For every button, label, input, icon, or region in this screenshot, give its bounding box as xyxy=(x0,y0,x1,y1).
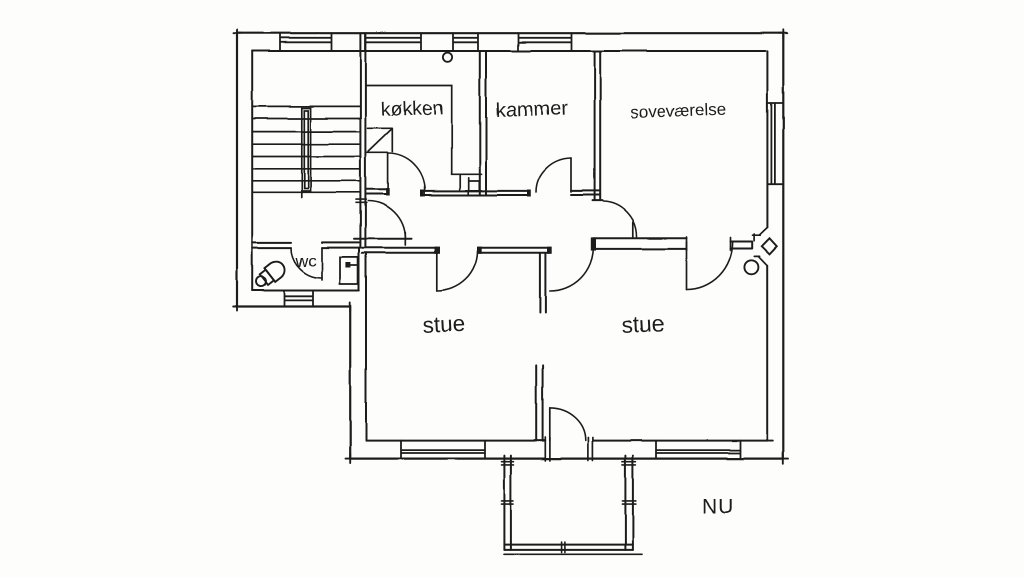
svg-text:NU: NU xyxy=(702,496,734,519)
svg-text:stue: stue xyxy=(422,311,466,338)
svg-text:kammer: kammer xyxy=(495,97,568,122)
svg-text:stue: stue xyxy=(621,311,665,338)
svg-text:wc: wc xyxy=(295,252,317,271)
svg-text:køkken: køkken xyxy=(380,97,444,121)
svg-text:soveværelse: soveværelse xyxy=(629,100,726,122)
